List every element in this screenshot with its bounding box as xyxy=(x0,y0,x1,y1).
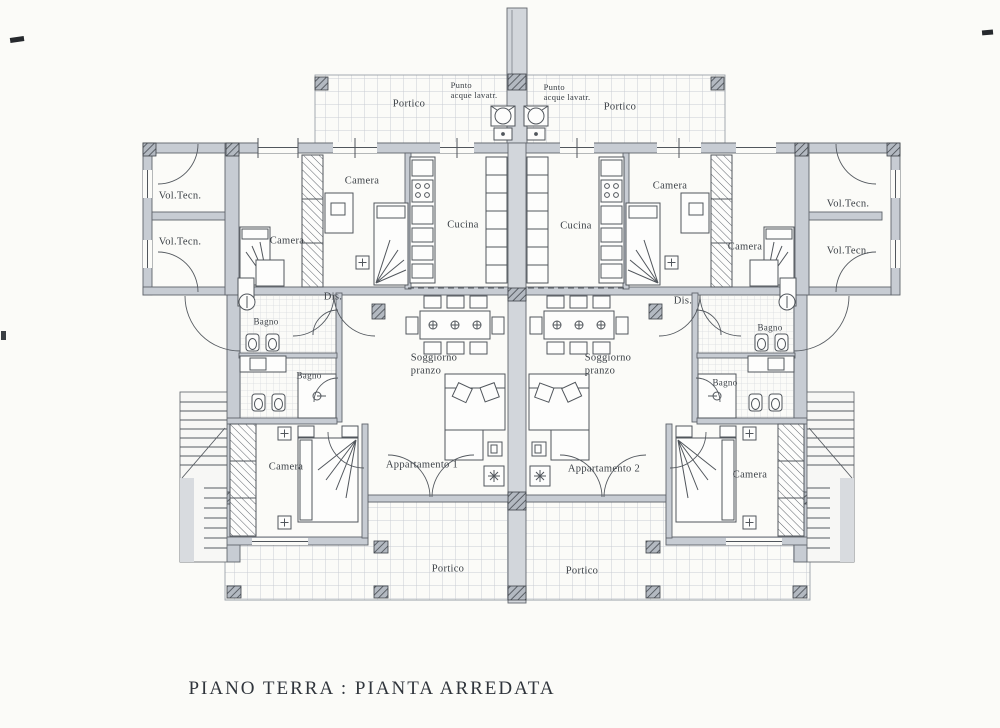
bed-apt2-top xyxy=(626,193,709,285)
kitchen-apt2 xyxy=(527,157,626,288)
floor-plan-drawing xyxy=(0,0,1000,728)
dining-set-apt1 xyxy=(406,296,504,354)
sofa-apt1 xyxy=(445,374,505,460)
staircase-left xyxy=(180,392,227,562)
bed-apt1-top xyxy=(325,193,408,285)
staircase-right xyxy=(807,392,854,562)
drawing-title: PIANO TERRA : PIANTA ARREDATA xyxy=(188,678,555,700)
kitchen-apt1 xyxy=(408,157,507,288)
bed-apt1-mid xyxy=(240,227,284,286)
dining-set-apt2 xyxy=(530,296,628,354)
bed-apt1-bottom xyxy=(278,426,358,529)
bed-apt2-bottom xyxy=(676,426,756,529)
sofa-apt2 xyxy=(529,374,589,460)
scanned-floor-plan-page: Punto acque lavatr. Punto acque lavatr. … xyxy=(0,0,1000,728)
bed-apt2-mid xyxy=(750,227,794,286)
